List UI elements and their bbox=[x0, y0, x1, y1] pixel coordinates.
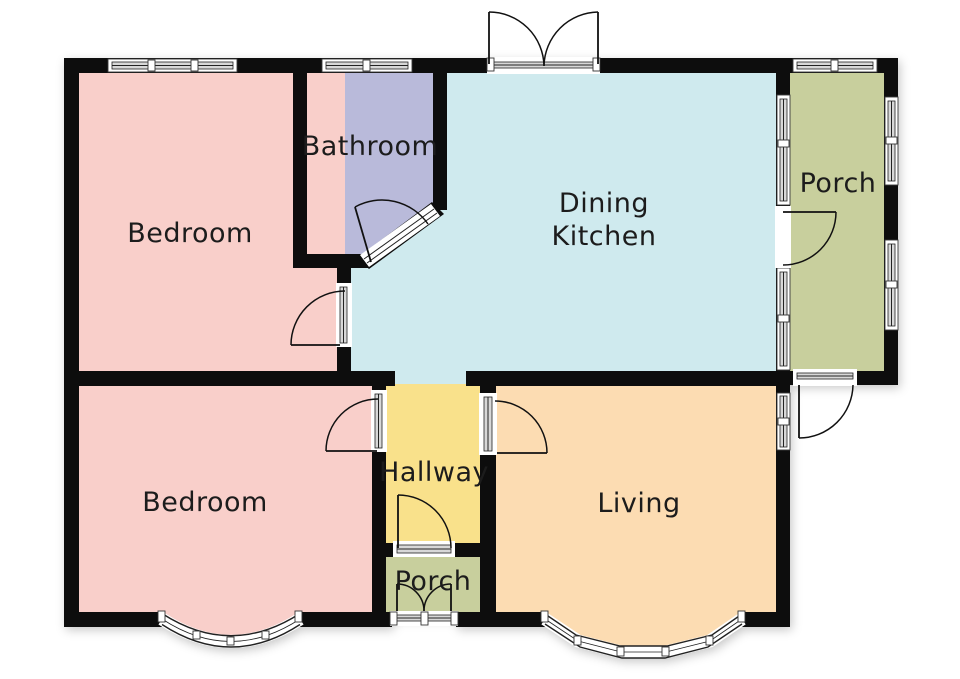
window-bedroom-top bbox=[108, 59, 237, 72]
label-living: Living bbox=[597, 488, 680, 519]
wall-middle-right bbox=[466, 371, 790, 386]
window-porch-top bbox=[793, 59, 877, 72]
label-bathroom: Bathroom bbox=[302, 131, 439, 162]
window-bathroom bbox=[322, 59, 412, 72]
window-living-right bbox=[777, 393, 790, 450]
wall-left bbox=[64, 58, 79, 627]
window-porch-right-upper bbox=[885, 97, 898, 185]
building-structure bbox=[64, 58, 898, 658]
window-porch-right-lower bbox=[885, 240, 898, 330]
floor-plan-page: Bedroom Bathroom Dining Kitchen Porch Be… bbox=[0, 0, 960, 679]
floor-plan: Bedroom Bathroom Dining Kitchen Porch Be… bbox=[0, 0, 960, 679]
label-porch-front: Porch bbox=[395, 566, 472, 597]
label-dining-kitchen-line1: Dining bbox=[559, 188, 649, 219]
window-porch-left-lower bbox=[777, 268, 790, 370]
label-porch-side: Porch bbox=[800, 168, 877, 199]
wall-bottom-segment bbox=[64, 612, 162, 627]
wall-bathroom-bottom bbox=[293, 254, 370, 268]
room-porch-side bbox=[783, 64, 891, 384]
door-dining-double bbox=[487, 12, 600, 74]
window-porch-left-upper bbox=[777, 95, 790, 205]
label-bedroom-top: Bedroom bbox=[127, 218, 253, 249]
wall-bedroom-bathroom bbox=[293, 58, 307, 268]
wall-bottom-segment bbox=[456, 612, 545, 627]
label-dining-kitchen-line2: Kitchen bbox=[552, 221, 657, 252]
door-porch-exterior bbox=[793, 369, 857, 438]
label-bedroom-bottom: Bedroom bbox=[142, 487, 268, 518]
label-hallway: Hallway bbox=[379, 457, 489, 488]
wall-middle-left bbox=[64, 371, 395, 386]
